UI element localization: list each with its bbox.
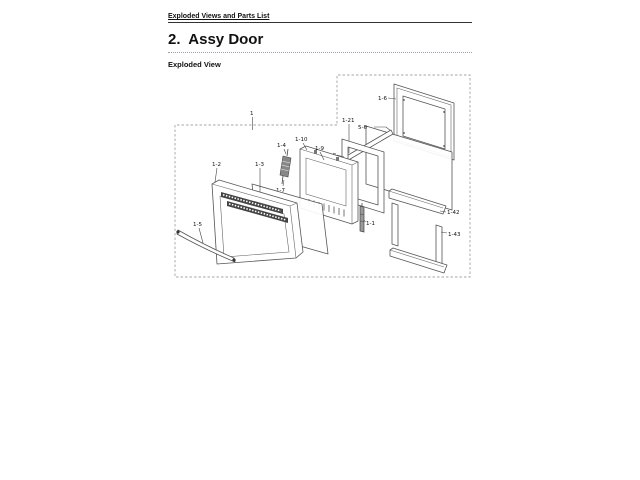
callout-trim-side: 1-43 (448, 232, 461, 238)
callout-latch-key-upper: 1-9 (315, 146, 324, 152)
leader-handle (199, 228, 203, 243)
trim-left-part (392, 203, 398, 246)
trim-right-part (436, 225, 442, 267)
door-panel-part (212, 180, 303, 264)
callout-latch: 1-1 (366, 221, 375, 227)
callout-door-panel: 1-2 (212, 162, 221, 168)
breadcrumb: Exploded Views and Parts List (168, 13, 472, 23)
callout-trim-top: 1-42 (447, 210, 459, 216)
latch-part (360, 203, 364, 232)
callout-door-glass: 1-3 (255, 162, 264, 168)
leader-door-panel (215, 168, 217, 182)
callout-handle: 1-5 (193, 222, 202, 228)
callout-inner-frame: 1-10 (295, 137, 308, 143)
exploded-view-diagram: 1 1-6 5-6 1-21 1-8 (165, 68, 477, 293)
callout-outer-frame: 1-6 (378, 96, 387, 102)
breadcrumb-label: Exploded Views and Parts List (168, 13, 269, 20)
document-page: Exploded Views and Parts List 2. Assy Do… (0, 0, 640, 480)
leader-screw (283, 180, 284, 186)
page-title: 2. Assy Door (168, 31, 472, 53)
callout-assy-door: 1 (250, 111, 254, 117)
callout-window-glass: 5-6 (358, 125, 367, 131)
spring-part (280, 149, 291, 184)
callout-seal-strip: 1-21 (342, 118, 354, 124)
leader-spring (284, 149, 286, 154)
callout-spring: 1-4 (277, 143, 286, 149)
